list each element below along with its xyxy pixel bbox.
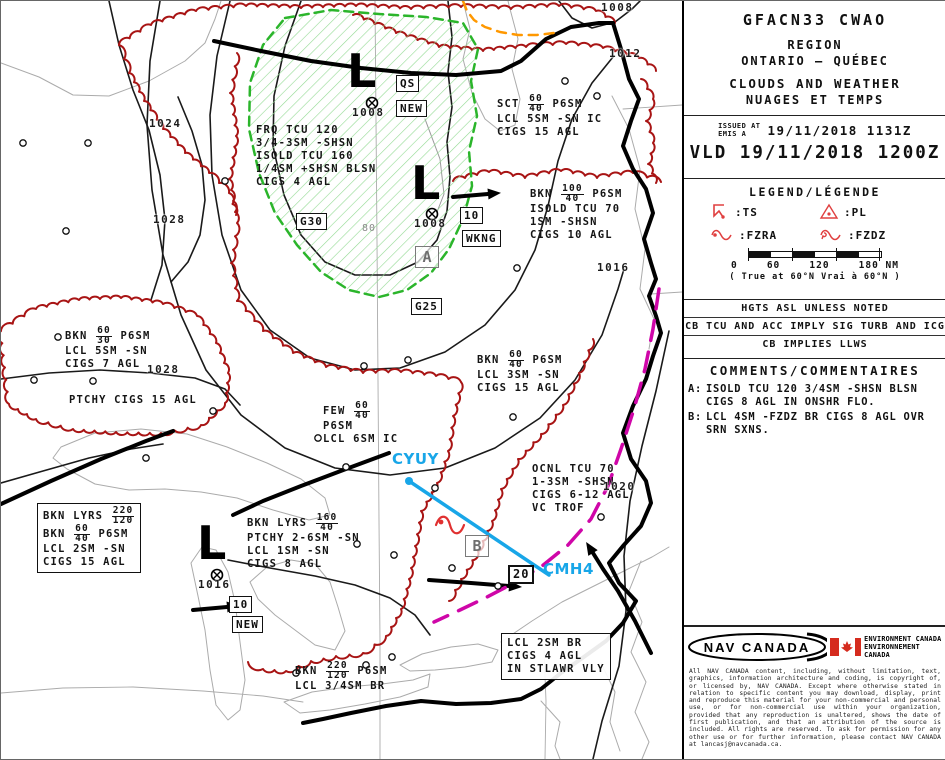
issued-value: 19/11/2018 1131Z: [768, 123, 912, 138]
legend-section: LEGEND/LÉGENDE :TS :PL :FZRA :FZDZ: [684, 179, 945, 300]
chart-title: GFACN33 CWAO: [684, 11, 945, 29]
gfa-map: FRQ TCU 1203/4-3SM -SHSNISOLD TCU 1601/4…: [1, 1, 682, 759]
fraction: 10040: [561, 185, 584, 203]
isobar-label: 1028: [153, 213, 186, 226]
region-name: ONTARIO – QUÉBEC: [684, 54, 945, 68]
map-box-10: 10: [460, 207, 483, 224]
wx-bkn6030: BKN 6030 P6SMLCL 5SM -SNCIGS 7 AGL: [65, 327, 151, 371]
legend-item-fzdz: :FZDZ: [819, 227, 928, 243]
map-box-20: 20: [508, 565, 534, 584]
svg-text:NAV CANADA: NAV CANADA: [704, 640, 810, 655]
map-box-qs: QS: [396, 75, 419, 92]
scale-note: ( True at 60°N Vrai à 60°N ): [684, 272, 945, 282]
graticule-label: 80: [362, 223, 376, 234]
note-cb-tcu: CB TCU AND ACC IMPLY SIG TURB AND ICG: [684, 318, 945, 336]
fzdz-icon: [819, 227, 843, 243]
wx-bkn6040: BKN 6040 P6SMLCL 3SM -SNCIGS 15 AGL: [477, 351, 563, 395]
map-box-g25: G25: [411, 298, 442, 315]
environment-canada-label: ENVIRONMENT CANADAENVIRONNEMENT CANADA: [864, 635, 944, 659]
fraction: 6030: [96, 327, 112, 345]
fzra-icon: [710, 227, 734, 243]
aerodrome-label-cmh4: CMH4: [543, 560, 594, 578]
low-pressure-value: 1008: [414, 217, 447, 230]
fraction: 6040: [354, 402, 370, 420]
wx-bkn220: BKN 220120 P6SMLCL 3/4SM BR: [295, 662, 387, 693]
notes-section: HGTS ASL UNLESS NOTED CB TCU AND ACC IMP…: [684, 300, 945, 359]
legend-item-fzra: :FZRA: [710, 227, 819, 243]
wx-ptchy: PTCHY CIGS 15 AGL: [69, 394, 197, 407]
fraction: 6040: [74, 525, 90, 543]
section-marker-a: A: [415, 246, 439, 268]
info-panel: GFACN33 CWAO REGION ONTARIO – QUÉBEC CLO…: [682, 1, 945, 759]
map-box-g30: G30: [296, 213, 327, 230]
legend-item-ts: :TS: [710, 203, 819, 221]
legend-header: LEGEND/LÉGENDE: [684, 185, 945, 199]
aerodrome-label-cyuy: CYUY: [392, 450, 439, 468]
comments-header: COMMENTS/COMMENTAIRES: [684, 363, 945, 378]
note-hgts: HGTS ASL UNLESS NOTED: [684, 300, 945, 318]
wx-bknlyrs-box: BKN LYRS 220120BKN 6040 P6SMLCL 2SM -SNC…: [37, 503, 141, 573]
pl-icon: [819, 203, 839, 221]
fraction: 220120: [326, 662, 349, 680]
title-section: GFACN33 CWAO REGION ONTARIO – QUÉBEC CLO…: [684, 1, 945, 116]
wx-few: FEW 6040P6SMLCL 6SM IC: [323, 402, 398, 446]
wx-sct: SCT 6040 P6SMLCL 5SM -SN ICCIGS 15 AGL: [497, 95, 602, 139]
scale-tick-60: 60: [767, 260, 780, 271]
low-symbol-L: L: [347, 51, 376, 91]
scale-tick-0: 0: [731, 260, 738, 271]
low-symbol-L: L: [197, 523, 226, 563]
fraction: 6040: [508, 351, 524, 369]
region-label: REGION: [684, 38, 945, 52]
fraction: 6040: [528, 95, 544, 113]
isobar-label: 1020: [603, 480, 636, 493]
issued-label: ISSUED ATEMIS A: [718, 123, 760, 138]
wx-bknlyrs160: BKN LYRS 16040PTCHY 2-6SM -SNLCL 1SM -SN…: [247, 514, 360, 571]
map-box-10: 10: [229, 596, 252, 613]
product-name-fr: NUAGES ET TEMPS: [684, 93, 945, 107]
isobar-label: 1008: [601, 1, 634, 14]
gfa-chart: FRQ TCU 1203/4-3SM -SHSNISOLD TCU 1601/4…: [0, 0, 945, 760]
navcanada-logo: NAV CANADA: [687, 631, 827, 663]
section-marker-b: B: [465, 535, 489, 557]
canada-flag-icon: [830, 638, 862, 656]
note-cb-llws: CB IMPLIES LLWS: [684, 336, 945, 353]
low-symbol-L: L: [411, 163, 440, 203]
isobar-label: 1024: [149, 117, 182, 130]
legend-item-pl: :PL: [819, 203, 928, 221]
comments-section: COMMENTS/COMMENTAIRES A: ISOLD TCU 120 3…: [684, 359, 945, 626]
wx-frq-tcu: FRQ TCU 1203/4-3SM -SHSNISOLD TCU 1601/4…: [256, 124, 376, 189]
product-name-en: CLOUDS AND WEATHER: [684, 76, 945, 91]
map-box-new: NEW: [232, 616, 263, 633]
map-labels: FRQ TCU 1203/4-3SM -SHSNISOLD TCU 1601/4…: [1, 1, 682, 759]
ts-icon: [710, 203, 730, 221]
scale-tick-120: 120: [809, 260, 829, 271]
isobar-label: 1016: [597, 261, 630, 274]
comment-b: B: LCL 4SM -FZDZ BR CIGS 8 AGL OVR SRN S…: [684, 411, 945, 439]
isobar-label: 1012: [609, 47, 642, 60]
validity-section: ISSUED ATEMIS A 19/11/2018 1131Z VLD 19/…: [684, 116, 945, 179]
low-pressure-value: 1016: [198, 578, 231, 591]
map-box-new: NEW: [396, 100, 427, 117]
wx-bkn100: BKN 10040 P6SMISOLD TCU 701SM -SHSNCIGS …: [530, 185, 622, 242]
footer-section: NAV CANADA ENVIRONMENT CANADAENVIRONNEME…: [684, 626, 945, 760]
scale-bar: 0 60 120 180 NM ( True at 60°N Vrai à 60…: [684, 251, 945, 282]
isobar-label: 1028: [147, 363, 180, 376]
comment-a: A: ISOLD TCU 120 3/4SM -SHSN BLSN CIGS 8…: [684, 383, 945, 411]
valid-value: VLD 19/11/2018 1200Z: [684, 143, 945, 163]
wx-stlawr-box: LCL 2SM BRCIGS 4 AGLIN STLAWR VLY: [501, 633, 611, 680]
fraction: 220120: [112, 507, 135, 525]
copyright-text: All NAV CANADA content, including, witho…: [684, 665, 945, 748]
map-box-wkng: WKNG: [462, 230, 501, 247]
low-pressure-value: 1008: [352, 106, 385, 119]
scale-tick-180: 180 NM: [859, 260, 899, 271]
fraction: 16040: [316, 514, 339, 532]
